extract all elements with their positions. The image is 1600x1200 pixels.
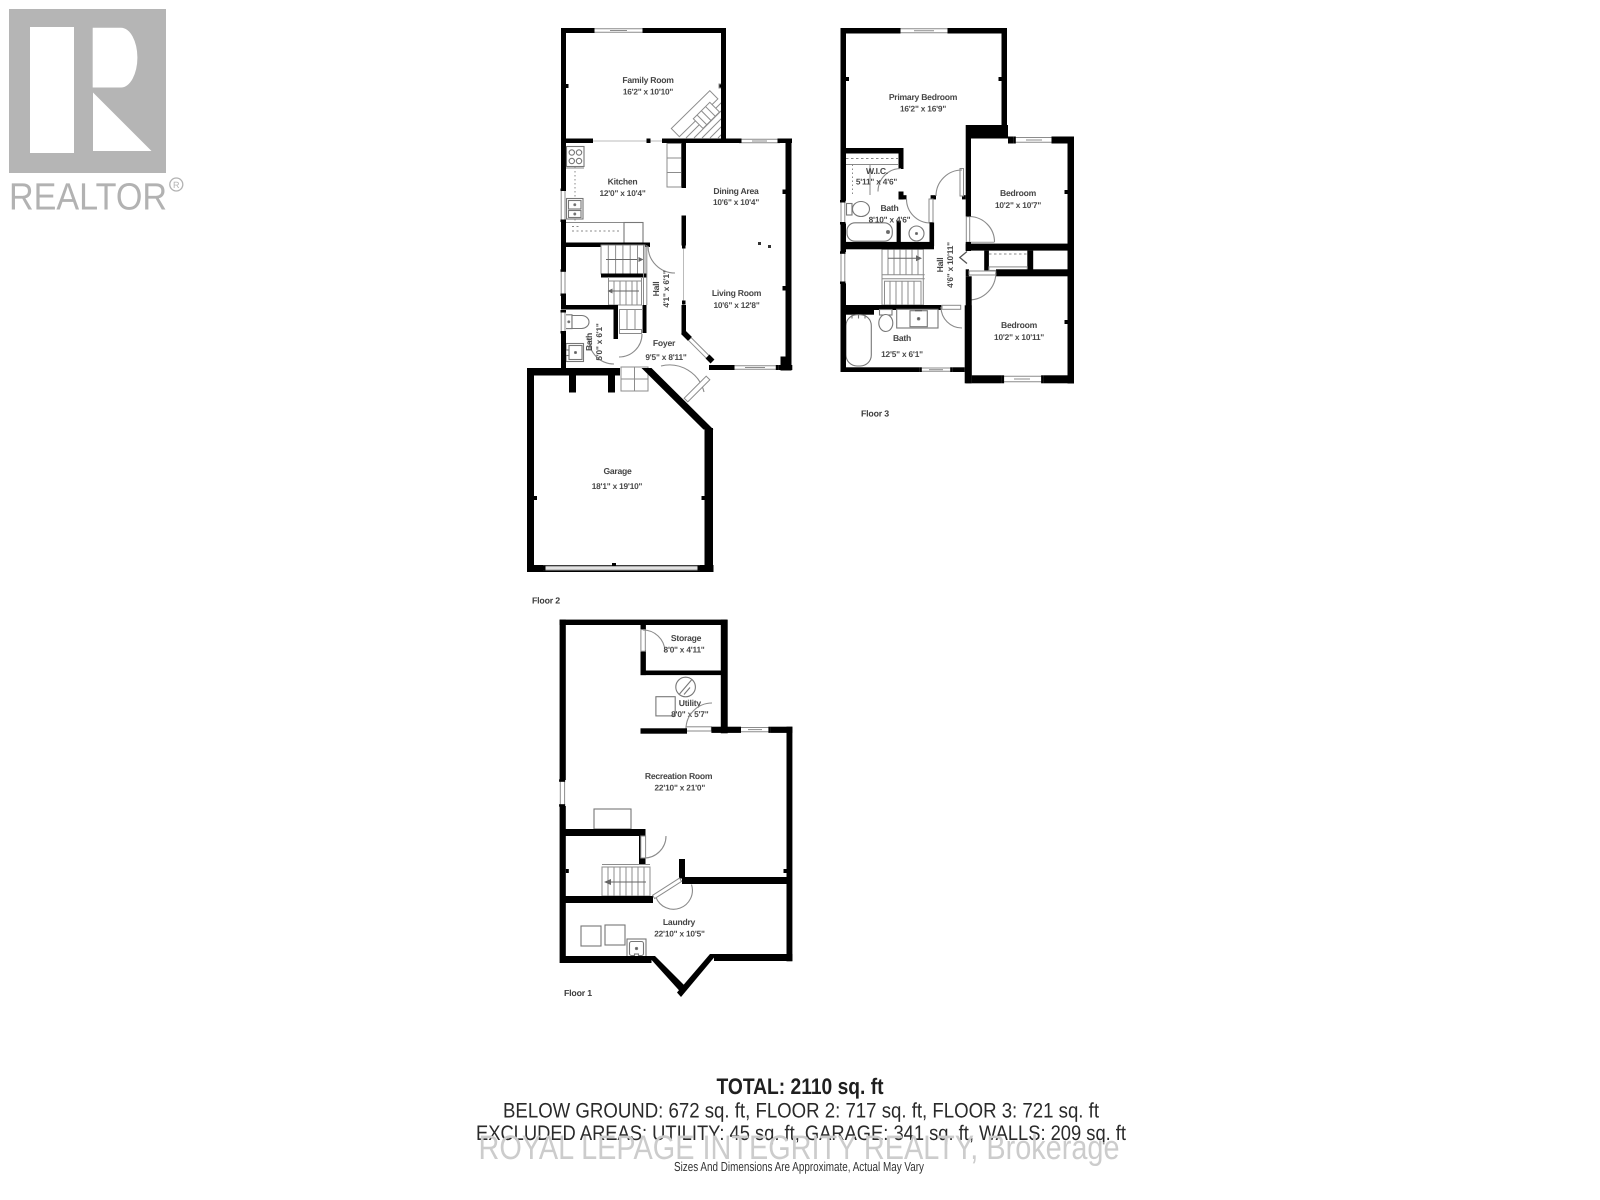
svg-text:Bedroom: Bedroom [1000,188,1037,198]
svg-text:8'0'' x 4'11'': 8'0'' x 4'11'' [664,645,705,655]
svg-text:Dining Area: Dining Area [713,186,759,196]
svg-text:Floor 1: Floor 1 [564,988,592,998]
svg-text:10'6" x 12'8": 10'6" x 12'8" [713,300,759,310]
svg-text:Storage: Storage [671,633,702,643]
svg-text:18'1" x 19'10": 18'1" x 19'10" [592,481,643,491]
svg-text:10'6" x 10'4": 10'6" x 10'4" [713,197,759,207]
svg-text:Primary Bedroom: Primary Bedroom [889,92,958,102]
svg-text:R: R [173,180,180,190]
svg-text:TOTAL: 2110 sq. ft: TOTAL: 2110 sq. ft [717,1074,884,1099]
svg-text:Bath: Bath [893,333,911,343]
svg-text:10'2" x 10'7": 10'2" x 10'7" [995,200,1041,210]
svg-text:10'2" x 10'11'': 10'2" x 10'11'' [994,332,1044,342]
svg-text:Floor 2: Floor 2 [532,596,560,606]
svg-text:Bath: Bath [880,203,898,213]
svg-text:12'0" x 10'4": 12'0" x 10'4" [599,188,645,198]
svg-text:REALTOR: REALTOR [9,177,167,219]
svg-text:Hall: Hall [935,258,945,273]
svg-text:Kitchen: Kitchen [608,177,638,187]
svg-text:Hall: Hall [651,282,661,297]
svg-text:Family Room: Family Room [622,75,674,85]
svg-text:12'5" x 6'1": 12'5" x 6'1" [881,349,923,359]
svg-text:8'0" x 5'7": 8'0" x 5'7" [671,709,709,719]
svg-text:8'10" x 4'6": 8'10" x 4'6" [869,215,911,225]
svg-text:Foyer: Foyer [653,338,676,348]
svg-text:Bedroom: Bedroom [1001,320,1038,330]
svg-text:Floor 3: Floor 3 [861,409,889,419]
svg-text:Bath: Bath [584,333,594,351]
svg-text:16'2" x 16'9": 16'2" x 16'9" [900,104,946,114]
svg-text:5'0" x 6'1": 5'0" x 6'1" [594,323,604,361]
svg-text:9'5" x 8'11": 9'5" x 8'11" [645,352,687,362]
svg-text:BELOW GROUND: 672 sq. ft, FLOO: BELOW GROUND: 672 sq. ft, FLOOR 2: 717 s… [503,1100,1099,1123]
svg-text:Sizes And Dimensions Are Appro: Sizes And Dimensions Are Approximate, Ac… [674,1159,924,1174]
svg-text:22'10" x 21'0": 22'10" x 21'0" [655,783,706,793]
svg-text:5'11" x 4'6": 5'11" x 4'6" [856,177,898,187]
svg-text:4'1" x 6'1": 4'1" x 6'1" [661,270,671,308]
svg-text:16'2'' x 10'10": 16'2'' x 10'10" [623,87,674,97]
svg-text:4'6" x 10'11": 4'6" x 10'11" [945,242,955,288]
svg-text:22'10" x 10'5": 22'10" x 10'5" [654,929,705,939]
svg-text:Living Room: Living Room [712,288,762,298]
svg-text:Garage: Garage [603,466,632,476]
svg-text:W.I.C.: W.I.C. [866,166,888,176]
svg-text:Laundry: Laundry [663,917,696,927]
svg-text:Recreation Room: Recreation Room [645,771,713,781]
